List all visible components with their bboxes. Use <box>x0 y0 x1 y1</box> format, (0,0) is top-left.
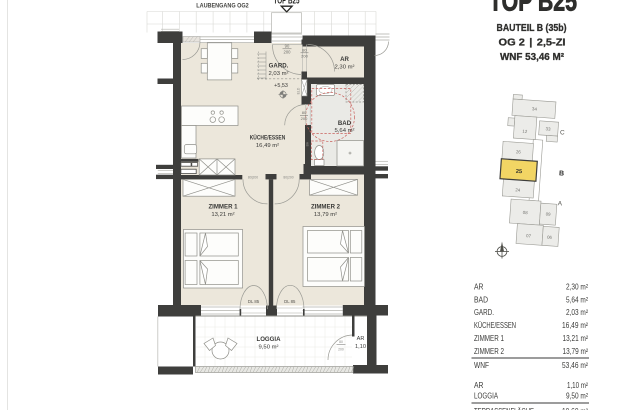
svg-text:2,30 m²: 2,30 m² <box>566 282 588 291</box>
svg-text:80: 80 <box>339 340 343 344</box>
svg-text:OG 2 | 2,5-ZI: OG 2 | 2,5-ZI <box>499 38 566 49</box>
svg-text:ZIMMER 1: ZIMMER 1 <box>208 204 238 211</box>
svg-text:200: 200 <box>284 50 292 55</box>
svg-text:9,50 m²: 9,50 m² <box>566 392 588 401</box>
svg-text:LOGGIA: LOGGIA <box>474 392 499 401</box>
svg-text:ZIMMER 1: ZIMMER 1 <box>474 334 504 343</box>
svg-text:DL 85: DL 85 <box>284 299 296 304</box>
svg-text:LAUBENGANG OG2: LAUBENGANG OG2 <box>196 3 249 10</box>
svg-text:80|200: 80|200 <box>283 175 293 179</box>
svg-text:5,64 m²: 5,64 m² <box>566 295 588 304</box>
svg-text:KÜCHE/ESSEN: KÜCHE/ESSEN <box>474 321 516 330</box>
svg-text:12: 12 <box>522 129 528 134</box>
svg-text:C: C <box>560 129 565 136</box>
svg-text:80|200: 80|200 <box>248 175 258 179</box>
svg-text:2,30 m²: 2,30 m² <box>335 65 355 71</box>
svg-text:ZIMMER 2: ZIMMER 2 <box>311 204 341 211</box>
svg-text:TOP B25: TOP B25 <box>274 0 300 7</box>
svg-text:80: 80 <box>302 110 307 115</box>
svg-text:BAD: BAD <box>338 120 352 127</box>
svg-text:08: 08 <box>523 210 529 215</box>
svg-text:GARD.: GARD. <box>474 308 494 317</box>
svg-text:9,50 m²: 9,50 m² <box>259 345 279 351</box>
svg-text:AR: AR <box>357 336 365 342</box>
svg-text:ELD: ELD <box>297 87 301 94</box>
svg-text:16,49 m²: 16,49 m² <box>256 143 279 149</box>
svg-text:200: 200 <box>301 54 308 59</box>
svg-text:80: 80 <box>302 48 307 53</box>
svg-text:DL 85: DL 85 <box>248 299 260 304</box>
svg-text:ZIMMER 2: ZIMMER 2 <box>474 347 504 356</box>
svg-text:24: 24 <box>515 187 521 192</box>
svg-text:B: B <box>559 170 565 177</box>
svg-text:AR: AR <box>340 56 349 63</box>
svg-text:BH: BH <box>306 141 310 146</box>
svg-text:13,21 m²: 13,21 m² <box>563 334 589 343</box>
svg-text:25: 25 <box>516 169 523 175</box>
svg-text:200: 200 <box>301 116 308 121</box>
svg-text:GARD.: GARD. <box>269 63 289 70</box>
svg-text:WNF 53,46 M²: WNF 53,46 M² <box>500 52 565 63</box>
svg-text:2,03 m²: 2,03 m² <box>566 308 588 317</box>
svg-text:33: 33 <box>545 126 551 131</box>
svg-text:09: 09 <box>546 211 552 216</box>
svg-text:TOP B25: TOP B25 <box>489 0 577 16</box>
svg-text:LOGGIA: LOGGIA <box>256 336 281 343</box>
svg-text:200: 200 <box>338 348 344 352</box>
svg-text:+5,53: +5,53 <box>274 83 288 89</box>
svg-text:16,49 m²: 16,49 m² <box>562 321 588 330</box>
svg-text:90: 90 <box>285 44 290 49</box>
svg-text:06: 06 <box>547 235 553 240</box>
svg-text:13,79 m²: 13,79 m² <box>563 347 589 356</box>
svg-text:1,10 m²: 1,10 m² <box>567 381 588 390</box>
svg-text:13,79 m²: 13,79 m² <box>314 212 337 218</box>
svg-text:2,03 m²: 2,03 m² <box>269 71 289 77</box>
svg-text:AR: AR <box>474 282 484 291</box>
svg-text:53,46 m²: 53,46 m² <box>562 361 588 370</box>
svg-text:BAUTEIL B (35b): BAUTEIL B (35b) <box>497 23 567 34</box>
svg-text:BAD: BAD <box>474 295 488 304</box>
svg-text:AR: AR <box>474 381 484 390</box>
svg-text:13,21 m²: 13,21 m² <box>211 212 234 218</box>
svg-text:5,64 m²: 5,64 m² <box>335 128 355 134</box>
svg-text:KÜCHE/ESSEN: KÜCHE/ESSEN <box>250 135 286 142</box>
svg-text:WNF: WNF <box>474 361 489 370</box>
svg-text:07: 07 <box>526 233 532 238</box>
svg-text:26: 26 <box>516 149 522 154</box>
svg-text:34: 34 <box>532 106 538 111</box>
svg-text:1,10: 1,10 <box>355 344 366 350</box>
